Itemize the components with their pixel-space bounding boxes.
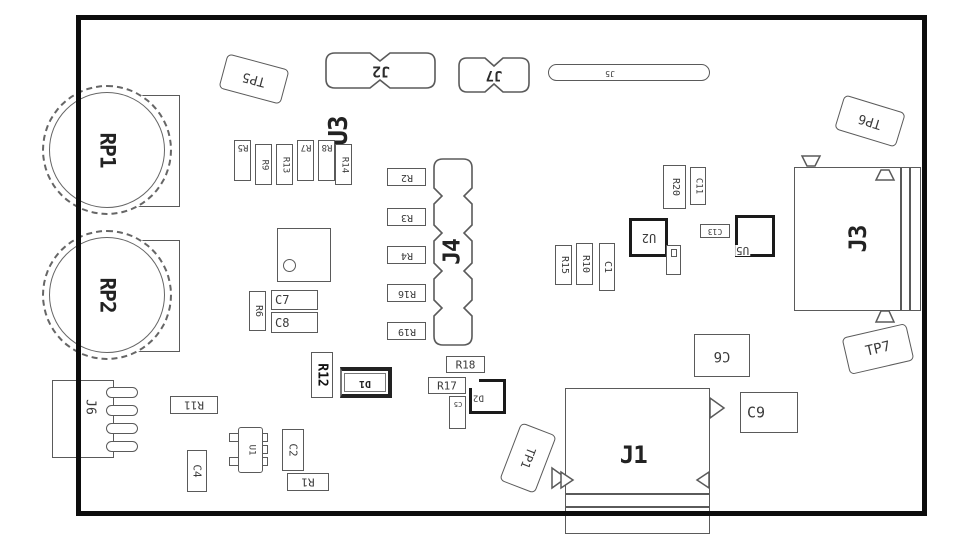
j1-pin-right-inner <box>695 470 710 490</box>
j6-pin-3 <box>106 423 138 434</box>
resistor-r8: R8 <box>318 140 335 181</box>
j6-pin-2 <box>106 405 138 416</box>
rp1-label: RP1 <box>97 133 118 168</box>
resistor-r3: R3 <box>387 208 426 226</box>
resistor-r10: R10 <box>576 243 593 285</box>
capacitor-c11: C11 <box>690 167 706 205</box>
test-point-tp6: TP6 <box>834 94 906 147</box>
small-component-mark <box>671 249 677 257</box>
capacitor-c1: C1 <box>599 243 615 291</box>
d2-notch <box>469 379 479 388</box>
capacitor-c8: C8 <box>271 312 318 333</box>
j4-label: J4 <box>442 239 465 265</box>
r5-label: R5 <box>237 142 248 151</box>
ic-u2: U2 <box>629 218 668 257</box>
j6-pin-1 <box>106 387 138 398</box>
j3-inner-line-2 <box>909 168 911 310</box>
rp1-knurled-knob: RP1 <box>42 85 172 215</box>
c1-label: C1 <box>602 261 612 273</box>
capacitor-c5: C5 <box>449 396 466 429</box>
resistor-r2: R2 <box>387 168 426 186</box>
resistor-r20: R20 <box>663 165 686 209</box>
capacitor-c6: C6 <box>694 334 750 377</box>
resistor-r1: R1 <box>287 473 329 491</box>
d1-label: D1 <box>359 378 371 388</box>
j1-pin-left-inner <box>560 470 575 490</box>
r16-label: R16 <box>397 288 415 298</box>
resistor-r17: R17 <box>428 377 466 394</box>
resistor-r13: R13 <box>276 144 293 185</box>
pin1-dot <box>283 259 296 272</box>
capacitor-c9: C9 <box>740 392 798 433</box>
rp2-knurled-knob: RP2 <box>42 230 172 360</box>
u1-label: U1 <box>246 445 255 456</box>
resistor-r11: R11 <box>170 396 218 414</box>
c2-label: C2 <box>288 443 299 456</box>
tp5-label: TP5 <box>241 70 267 89</box>
c11-label: C11 <box>694 178 703 194</box>
connector-j1: J1 <box>565 388 710 534</box>
j3-pin-top-right <box>874 169 896 181</box>
r1-label: R1 <box>301 477 314 488</box>
resistor-r7: R7 <box>297 140 314 181</box>
d2-label: D2 <box>473 392 484 401</box>
connector-j7: J7 <box>458 57 530 93</box>
r14-label: R14 <box>339 156 348 172</box>
r15-label: R15 <box>559 256 569 274</box>
c9-label: C9 <box>747 405 765 420</box>
j7-label: J7 <box>486 68 503 82</box>
r18-label: R18 <box>456 359 476 370</box>
j3-pin-top-left <box>800 155 822 167</box>
test-point-tp5: TP5 <box>218 53 289 104</box>
r4-label: R4 <box>400 250 412 260</box>
r19-label: R19 <box>397 326 415 336</box>
r8-label: R8 <box>321 142 332 151</box>
capacitor-c2: C2 <box>282 429 304 471</box>
connector-j4: J4 <box>433 158 473 346</box>
capacitor-c4: C4 <box>187 450 207 492</box>
r6-label: R6 <box>253 305 263 317</box>
connector-j6: J6 <box>52 380 114 458</box>
ic-square <box>277 228 331 282</box>
r20-label: R20 <box>670 178 680 196</box>
capacitor-c13: C13 <box>700 224 730 238</box>
pcb-assembly-drawing: RP1 RP2 TP5 TP6 J2 J7 J5 U3 R5 R9 <box>0 0 968 542</box>
j2-label: J2 <box>372 63 390 78</box>
resistor-r18: R18 <box>446 356 485 373</box>
test-point-tp7: TP7 <box>842 323 915 375</box>
connector-j3: J3 <box>794 167 921 311</box>
j3-inner-line-1 <box>900 168 902 310</box>
test-point-tp1: TP1 <box>499 422 557 493</box>
resistor-r4: R4 <box>387 246 426 264</box>
r12-label: R12 <box>316 363 329 386</box>
connector-j2: J2 <box>325 52 437 89</box>
j1-pin-right-outer <box>709 396 726 420</box>
j1-line-1 <box>566 493 709 495</box>
c4-label: C4 <box>192 464 203 477</box>
c6-label: C6 <box>714 349 731 363</box>
resistor-r9: R9 <box>255 144 272 185</box>
connector-j5: J5 <box>548 64 710 81</box>
r11-label: R11 <box>184 400 204 411</box>
r7-label: R7 <box>300 142 311 151</box>
j6-label: J6 <box>84 399 97 415</box>
c7-label: C7 <box>275 294 289 306</box>
tp1-label: TP1 <box>519 446 538 471</box>
resistor-r19: R19 <box>387 322 426 340</box>
u5-label: U5 <box>735 245 750 256</box>
ic-u5: U5 <box>735 215 775 257</box>
j6-pin-4 <box>106 441 138 452</box>
c5-label: C5 <box>453 400 461 407</box>
resistor-r16: R16 <box>387 284 426 302</box>
ic-u1: U1 <box>238 427 263 473</box>
r3-label: R3 <box>400 212 412 222</box>
r17-label: R17 <box>437 380 457 391</box>
j1-label: J1 <box>620 443 647 467</box>
j5-label: J5 <box>605 69 615 77</box>
j3-pin-bottom <box>874 310 896 323</box>
r9-label: R9 <box>259 159 268 170</box>
r2-label: R2 <box>400 172 412 182</box>
j1-line-2 <box>566 506 709 508</box>
j3-label: J3 <box>846 226 870 253</box>
small-component <box>666 245 681 275</box>
r10-label: R10 <box>580 255 590 273</box>
rp2-label: RP2 <box>97 278 118 313</box>
resistor-r14: R14 <box>335 144 352 185</box>
c8-label: C8 <box>275 317 289 329</box>
tp6-label: TP6 <box>857 111 883 130</box>
resistor-r5: R5 <box>234 140 251 181</box>
resistor-r15: R15 <box>555 245 572 285</box>
r13-label: R13 <box>280 156 289 172</box>
resistor-r12: R12 <box>311 352 333 398</box>
diode-d1: D1 <box>340 367 392 398</box>
resistor-r6: R6 <box>249 291 266 331</box>
diode-d2: D2 <box>469 379 506 414</box>
u2-label: U2 <box>641 232 655 244</box>
c13-label: C13 <box>708 227 722 235</box>
capacitor-c7: C7 <box>271 290 318 310</box>
tp7-label: TP7 <box>864 339 892 358</box>
